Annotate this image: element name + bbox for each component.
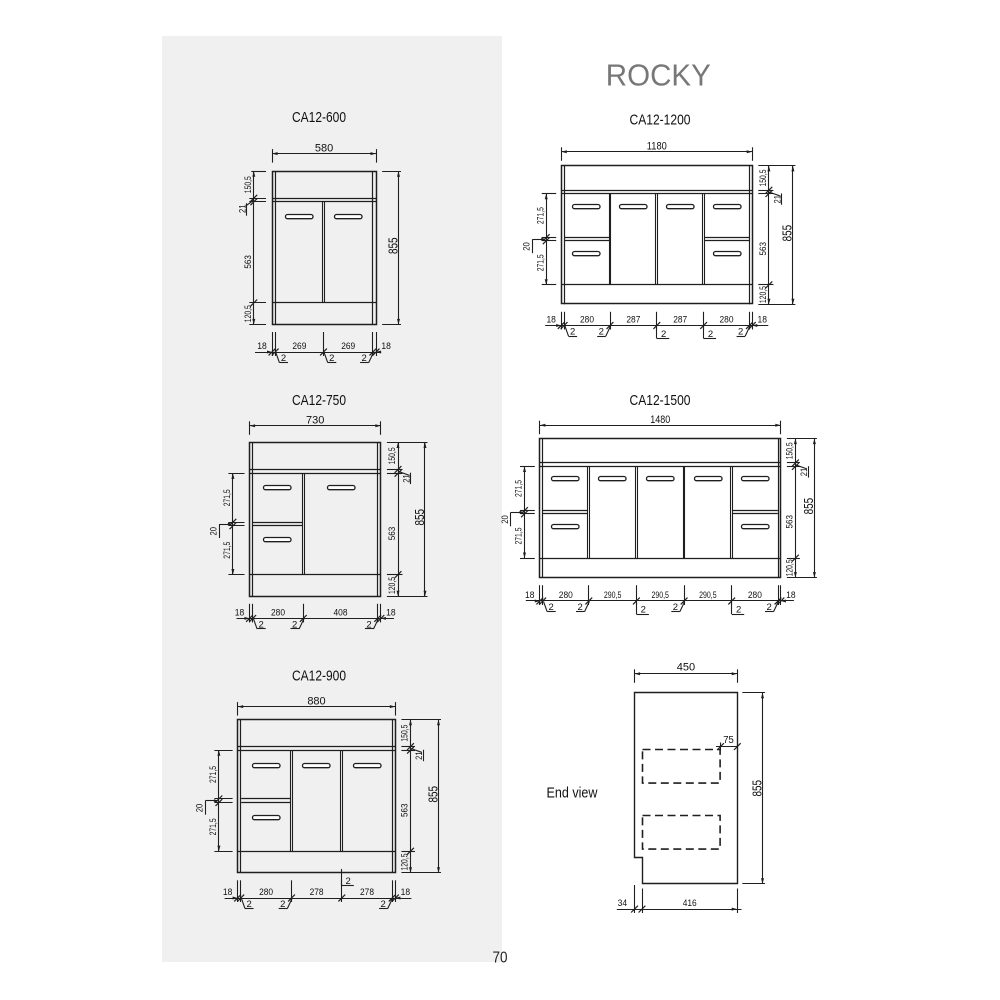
svg-text:408: 408 <box>334 608 348 619</box>
svg-text:20: 20 <box>194 804 205 813</box>
svg-text:2: 2 <box>599 327 604 338</box>
svg-text:120,5: 120,5 <box>785 559 796 576</box>
svg-text:271,5: 271,5 <box>208 766 219 783</box>
svg-text:CA12-1200: CA12-1200 <box>630 112 691 129</box>
svg-text:CA12-1500: CA12-1500 <box>630 392 691 409</box>
svg-text:880: 880 <box>307 695 325 707</box>
svg-text:290,5: 290,5 <box>651 590 669 601</box>
svg-text:2: 2 <box>362 353 367 364</box>
svg-text:280: 280 <box>580 315 594 326</box>
svg-text:150,5: 150,5 <box>400 725 411 742</box>
svg-text:34: 34 <box>618 898 628 909</box>
svg-text:CA12-900: CA12-900 <box>292 667 346 684</box>
svg-text:271,5: 271,5 <box>208 818 219 835</box>
svg-text:280: 280 <box>559 590 573 601</box>
svg-text:21: 21 <box>772 195 783 204</box>
svg-text:855: 855 <box>750 780 764 797</box>
svg-text:2: 2 <box>366 619 371 630</box>
svg-text:416: 416 <box>683 898 697 909</box>
svg-text:287: 287 <box>673 315 687 326</box>
svg-text:280: 280 <box>748 590 762 601</box>
svg-text:18: 18 <box>525 590 535 601</box>
svg-text:18: 18 <box>546 315 556 326</box>
svg-text:563: 563 <box>387 527 398 541</box>
svg-text:21: 21 <box>799 468 810 477</box>
svg-text:18: 18 <box>257 341 267 352</box>
svg-text:150,5: 150,5 <box>243 176 254 193</box>
svg-text:563: 563 <box>243 255 254 269</box>
svg-text:2: 2 <box>381 899 386 910</box>
svg-text:21: 21 <box>414 751 425 760</box>
svg-text:271,5: 271,5 <box>222 542 233 559</box>
svg-text:280: 280 <box>720 315 734 326</box>
svg-text:269: 269 <box>292 341 306 352</box>
svg-text:271,5: 271,5 <box>514 528 525 545</box>
svg-text:271,5: 271,5 <box>514 480 525 497</box>
svg-text:150,5: 150,5 <box>387 447 398 464</box>
svg-text:20: 20 <box>500 515 511 524</box>
svg-text:150,5: 150,5 <box>785 442 796 459</box>
svg-text:70: 70 <box>493 950 508 967</box>
svg-text:120,5: 120,5 <box>758 286 769 303</box>
svg-text:18: 18 <box>223 887 233 898</box>
svg-text:271,5: 271,5 <box>535 254 546 271</box>
svg-text:2: 2 <box>661 329 666 340</box>
svg-text:2: 2 <box>346 876 351 887</box>
svg-text:20: 20 <box>522 242 533 251</box>
svg-text:End view: End view <box>547 786 598 802</box>
svg-text:18: 18 <box>401 887 411 898</box>
svg-text:18: 18 <box>386 608 396 619</box>
svg-text:18: 18 <box>381 341 391 352</box>
svg-text:1180: 1180 <box>647 141 667 153</box>
svg-text:563: 563 <box>758 242 769 256</box>
svg-text:2: 2 <box>673 602 678 613</box>
svg-text:280: 280 <box>271 608 285 619</box>
svg-text:2: 2 <box>570 327 575 338</box>
svg-text:2: 2 <box>292 619 297 630</box>
svg-text:2: 2 <box>281 353 286 364</box>
svg-text:563: 563 <box>400 803 411 817</box>
svg-text:2: 2 <box>641 604 646 615</box>
svg-text:CA12-600: CA12-600 <box>292 109 346 126</box>
svg-text:150,5: 150,5 <box>758 170 769 187</box>
svg-text:2: 2 <box>549 602 554 613</box>
svg-text:855: 855 <box>413 509 427 526</box>
svg-text:290,5: 290,5 <box>604 590 622 601</box>
svg-text:2: 2 <box>736 604 741 615</box>
svg-text:2: 2 <box>577 602 582 613</box>
svg-text:1480: 1480 <box>650 414 670 426</box>
svg-text:120,5: 120,5 <box>400 854 411 871</box>
svg-text:ROCKY: ROCKY <box>606 58 711 93</box>
svg-text:20: 20 <box>208 527 219 536</box>
svg-text:278: 278 <box>310 887 324 898</box>
svg-text:18: 18 <box>786 590 796 601</box>
svg-text:2: 2 <box>259 619 264 630</box>
svg-text:120,5: 120,5 <box>243 305 254 322</box>
svg-text:120,5: 120,5 <box>387 577 398 594</box>
svg-text:269: 269 <box>341 341 355 352</box>
svg-text:563: 563 <box>785 515 796 529</box>
svg-text:278: 278 <box>360 887 374 898</box>
svg-text:CA12-750: CA12-750 <box>292 392 346 409</box>
svg-text:287: 287 <box>626 315 640 326</box>
svg-text:450: 450 <box>677 661 695 673</box>
svg-text:2: 2 <box>766 602 771 613</box>
svg-text:2: 2 <box>246 899 251 910</box>
svg-text:21: 21 <box>237 204 248 213</box>
svg-text:855: 855 <box>802 498 816 515</box>
svg-text:2: 2 <box>708 329 713 340</box>
svg-text:18: 18 <box>235 608 245 619</box>
svg-text:855: 855 <box>426 786 440 803</box>
svg-text:75: 75 <box>723 735 734 746</box>
svg-text:2: 2 <box>738 327 743 338</box>
svg-text:855: 855 <box>386 238 400 255</box>
svg-text:271,5: 271,5 <box>535 207 546 224</box>
svg-text:21: 21 <box>401 474 412 483</box>
svg-text:2: 2 <box>280 899 285 910</box>
svg-text:280: 280 <box>259 887 273 898</box>
svg-text:580: 580 <box>315 142 333 154</box>
svg-text:2: 2 <box>329 353 334 364</box>
svg-text:290,5: 290,5 <box>699 590 717 601</box>
svg-text:271,5: 271,5 <box>222 489 233 506</box>
svg-text:730: 730 <box>306 415 324 427</box>
svg-text:855: 855 <box>781 225 795 242</box>
svg-text:18: 18 <box>758 315 768 326</box>
